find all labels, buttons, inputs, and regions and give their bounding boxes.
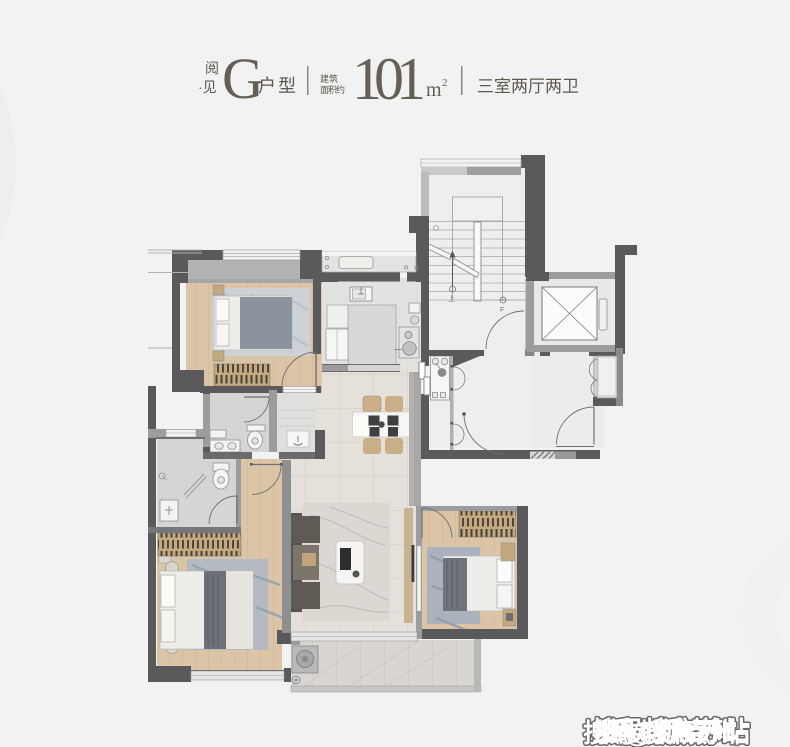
svg-text:m: m: [426, 79, 442, 101]
svg-text:建筑: 建筑: [320, 73, 338, 84]
svg-text:阅: 阅: [205, 60, 219, 76]
svg-text:上: 上: [448, 294, 455, 303]
svg-text:三室两厅两卫: 三室两厅两卫: [477, 77, 579, 96]
svg-text:搜狐号@搜狐焦点苏州站: 搜狐号@搜狐焦点苏州站: [592, 716, 750, 746]
svg-text:F: F: [500, 307, 504, 314]
svg-text:户型: 户型: [258, 76, 298, 96]
svg-text:面积约: 面积约: [320, 84, 345, 95]
svg-text:2: 2: [442, 77, 448, 89]
svg-text:101: 101: [352, 46, 426, 112]
svg-text:·见: ·见: [198, 79, 217, 95]
